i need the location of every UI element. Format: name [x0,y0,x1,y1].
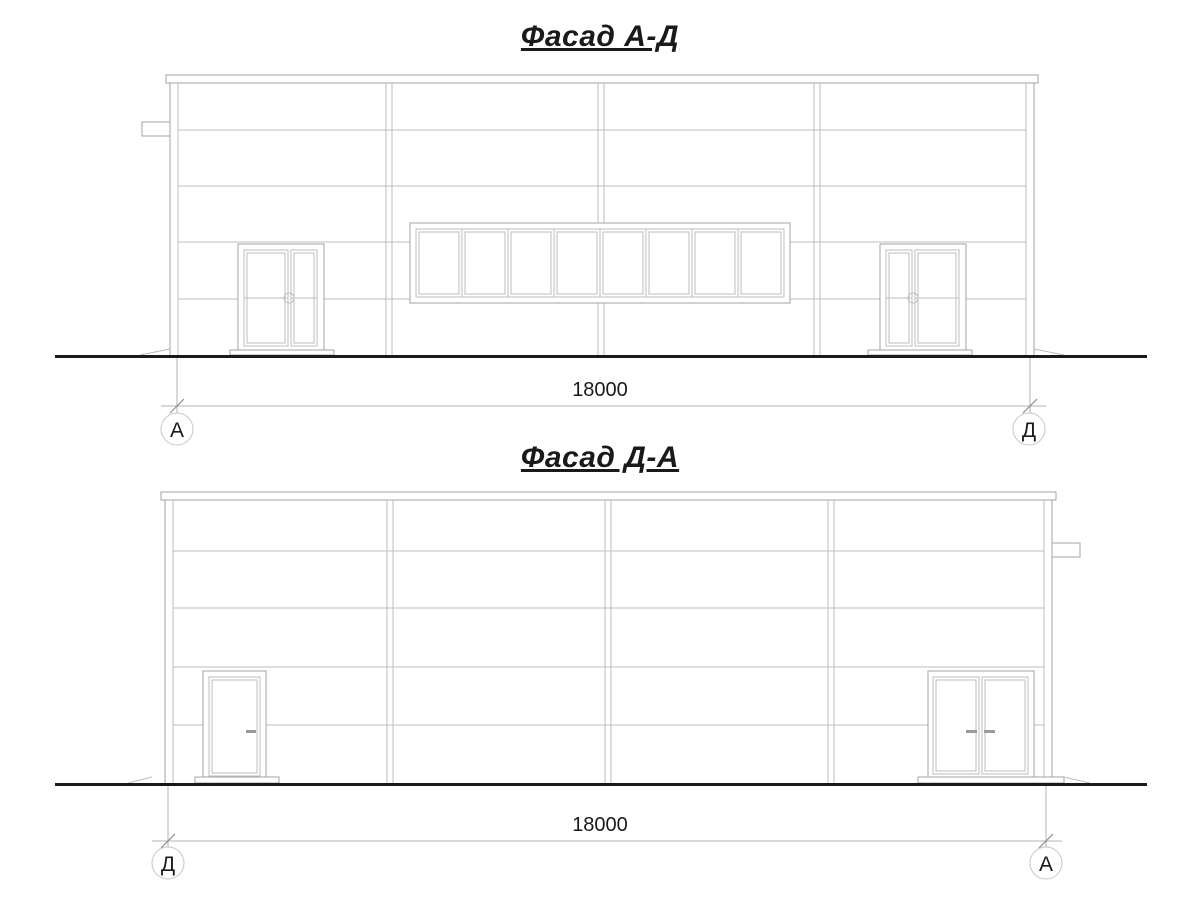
dimension-18000: 18000 [152,786,1062,848]
door-handle-icon [246,730,256,733]
wall-projection-right [1052,543,1080,557]
axis-letter: Д [161,853,175,876]
entrance-door-left [238,244,324,351]
ground-ramp-line [1034,349,1064,355]
dimension-18000: 18000 [161,358,1046,413]
axis-letter: А [1039,853,1053,876]
wall-projection-left [142,122,170,136]
door-handle-icon [984,730,995,733]
double-door-right [928,671,1034,779]
dimension-text: 18000 [572,814,628,836]
axis-letter: Д [1022,419,1036,442]
axis-marker-right: Д [1013,413,1045,445]
door-threshold [918,777,1064,783]
facade-da-drawing: 18000 Д А [55,492,1147,879]
ribbon-window [410,223,790,303]
dimension-text: 18000 [572,379,628,401]
axis-marker-right: А [1030,847,1062,879]
elevation-drawings: 18000 А Д [0,0,1200,900]
drawing-sheet: Фасад А-Д Фасад Д-А [0,0,1200,900]
ground-ramp-line [140,349,170,355]
door-opening-frame [928,671,1034,779]
parapet-cap [166,75,1038,83]
entrance-door-right [880,244,966,351]
single-door-left [203,671,266,781]
axis-marker-left: Д [152,847,184,879]
ground-line [55,783,1147,786]
ground-ramp-line [128,777,152,783]
ground-line [55,355,1147,358]
door-threshold [868,350,972,355]
door-threshold [230,350,334,355]
parapet-cap [161,492,1056,500]
door-threshold [195,777,279,783]
axis-marker-left: А [161,413,193,445]
ground-ramp-line [1064,777,1090,783]
facade-ad-drawing: 18000 А Д [55,75,1147,445]
axis-letter: А [170,419,184,442]
wall-outline [165,500,1052,784]
door-handle-icon [966,730,977,733]
